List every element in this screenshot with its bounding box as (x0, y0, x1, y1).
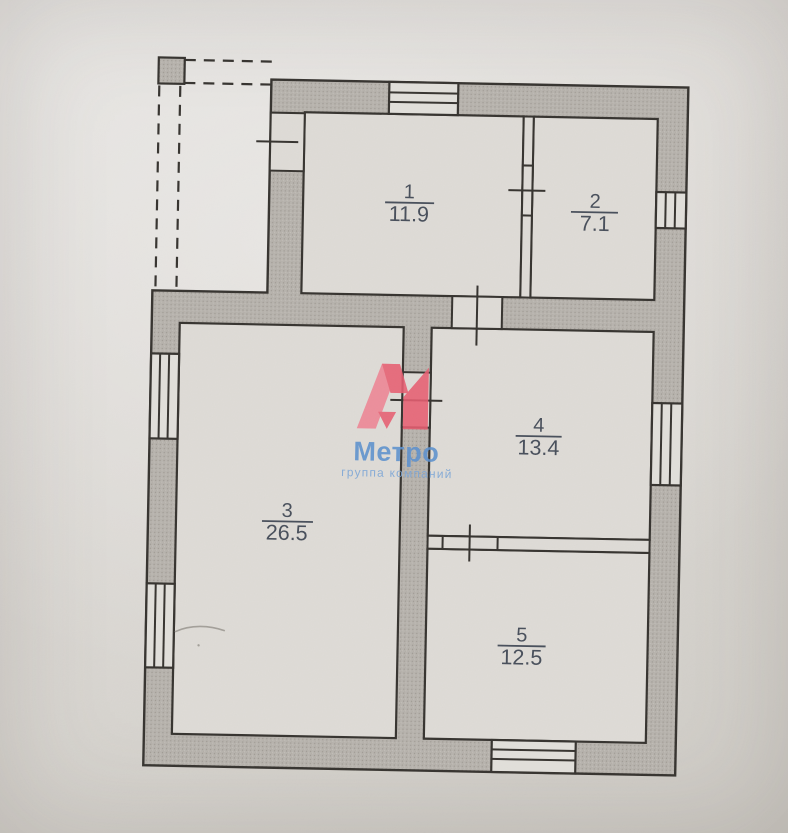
svg-text:26.5: 26.5 (266, 521, 308, 546)
door-entrance-room1 (256, 112, 305, 171)
svg-text:3: 3 (281, 500, 293, 522)
window-top-room1 (389, 82, 459, 115)
metro-logo-tagline: группа компаний (341, 465, 453, 481)
svg-text:7.1: 7.1 (580, 212, 610, 237)
room-2-area: 7.1 (580, 212, 610, 237)
window-right-room2 (656, 192, 687, 229)
svg-text:2: 2 (589, 191, 601, 213)
svg-text:12.5: 12.5 (500, 645, 542, 670)
room-3-number: 3 (281, 500, 293, 522)
svg-text:13.4: 13.4 (517, 435, 559, 460)
svg-text:1: 1 (404, 181, 416, 203)
svg-text:5: 5 (516, 624, 528, 646)
floor-plan: 1 11.9 2 7.1 3 26.5 4 13.4 5 12.5 (0, 0, 788, 833)
porch-outline (155, 59, 272, 291)
window-bottom-room5 (491, 740, 576, 774)
window-right-room4 (651, 403, 683, 486)
metro-logo-brand: Метро (353, 436, 439, 468)
svg-text:11.9: 11.9 (389, 202, 430, 227)
room-4-number: 4 (533, 415, 545, 437)
scanned-paper-photo: 1 11.9 2 7.1 3 26.5 4 13.4 5 12.5 (0, 0, 788, 833)
room-1-area: 11.9 (389, 202, 430, 227)
room-5-number: 5 (516, 624, 528, 646)
window-left-room3-lower (145, 583, 175, 668)
svg-text:4: 4 (533, 415, 545, 437)
room-3-area: 26.5 (266, 521, 308, 546)
room-1-number: 1 (404, 181, 416, 203)
room-5-area: 12.5 (500, 645, 542, 670)
window-left-room3-upper (150, 353, 180, 439)
room-2-number: 2 (589, 191, 601, 213)
floor-plan-tilt-wrapper: 1 11.9 2 7.1 3 26.5 4 13.4 5 12.5 (0, 0, 788, 833)
porch-pillar (158, 57, 184, 83)
room-4-area: 13.4 (517, 435, 559, 460)
